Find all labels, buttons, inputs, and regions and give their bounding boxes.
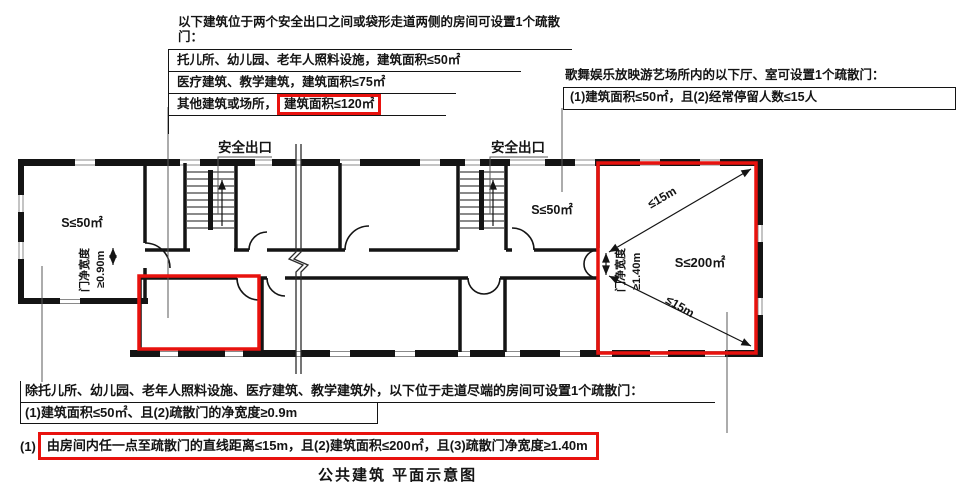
rule-row-medical: 医疗建筑、教学建筑，建筑面积≤75㎡ (169, 72, 456, 94)
plan-labels: 安全出口 安全出口 S≤50㎡ 门净宽度 ≥0.90m S≤50㎡ S≤200㎡… (61, 139, 725, 320)
rule-entertainment-condition: (1)建筑面积≤50㎡，且(2)经常停留人数≤15人 (563, 88, 956, 110)
mid-room-area-label: S≤50㎡ (531, 202, 573, 217)
rule-row-other: 其他建筑或场所，建筑面积≤120㎡ (169, 94, 446, 116)
staircase-right (460, 170, 504, 230)
rule-block-corridor-end: 除托儿所、幼儿园、老年人照料设施、医疗建筑、教学建筑外，以下位于走道尽端的房间可… (20, 381, 715, 424)
rule-block-entertainment: 歌舞娱乐放映游艺场所内的以下厅、室可设置1个疏散门： (1)建筑面积≤50㎡，且… (563, 66, 956, 110)
rule-row-empty (169, 116, 446, 134)
window-lines (18, 160, 763, 357)
rule-corridor-end-condition: (1)建筑面积≤50㎡、且(2)疏散门的净宽度≥0.9m (21, 403, 378, 424)
highlight-any-point-rule: 由房间内任一点至疏散门的直线距离≤15m，且(2)建筑面积≤200㎡，且(3)疏… (38, 432, 599, 460)
big-room-door-width-label-2: ≥1.40m (631, 253, 643, 290)
distance-arrow-top (609, 169, 751, 252)
left-room-door-width-label-2: ≥0.90m (95, 251, 107, 288)
distance-label-bottom: ≤15m (663, 293, 697, 320)
left-room-area-label: S≤50㎡ (61, 215, 103, 230)
outer-walls (18, 159, 763, 357)
big-room-door-width-label-1: 门净宽度 (613, 247, 627, 292)
rule-row-childcare: 托儿所、幼儿园、老年人照料设施，建筑面积≤50㎡ (169, 50, 521, 72)
rule-corridor-end-title: 除托儿所、幼儿园、老年人照料设施、医疗建筑、教学建筑外，以下位于走道尽端的房间可… (21, 381, 715, 403)
distance-label-top: ≤15m (645, 184, 679, 211)
highlight-area-120: 建筑面积≤120㎡ (277, 94, 381, 115)
exit-label-left: 安全出口 (218, 139, 272, 155)
rule-two-exits-rows: 托儿所、幼儿园、老年人照料设施，建筑面积≤50㎡ 医疗建筑、教学建筑，建筑面积≤… (168, 50, 572, 134)
rule-any-point-prefix: (1) (20, 439, 38, 454)
rule-block-two-exits: 以下建筑位于两个安全出口之间或袋形走道两侧的房间可设置1个疏散门： 托儿所、幼儿… (168, 13, 572, 134)
big-room-area-label: S≤200㎡ (675, 255, 726, 270)
highlight-mid-room (139, 276, 259, 349)
door-arcs (145, 226, 598, 300)
rule-two-exits-title: 以下建筑位于两个安全出口之间或袋形走道两侧的房间可设置1个疏散门： (168, 13, 572, 50)
exit-label-right: 安全出口 (491, 139, 545, 155)
rule-entertainment-title: 歌舞娱乐放映游艺场所内的以下厅、室可设置1个疏散门： (563, 66, 956, 88)
staircase-left (187, 170, 234, 230)
break-line (289, 144, 308, 374)
rule-row-other-prefix: 其他建筑或场所， (177, 97, 277, 111)
caption: 公共建筑 平面示意图 (318, 464, 477, 485)
left-room-door-width-label-1: 门净宽度 (77, 247, 91, 292)
rule-block-any-point: (1) 由房间内任一点至疏散门的直线距离≤15m，且(2)建筑面积≤200㎡，且… (20, 432, 599, 460)
